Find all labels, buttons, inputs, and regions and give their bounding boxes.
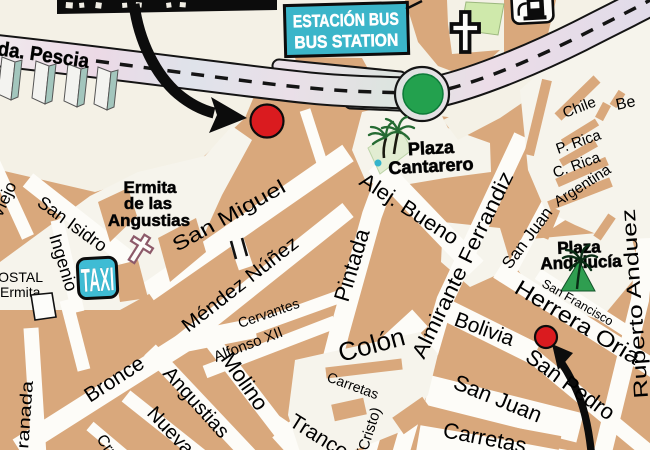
svg-text:ESTACIÓN BUS: ESTACIÓN BUS (292, 8, 399, 32)
svg-text:Angustias: Angustias (108, 211, 190, 230)
svg-text:BUS STATION: BUS STATION (294, 30, 398, 53)
svg-text:TAXI: TAXI (80, 260, 115, 299)
svg-text:HOSTAL: HOSTAL (0, 269, 43, 285)
